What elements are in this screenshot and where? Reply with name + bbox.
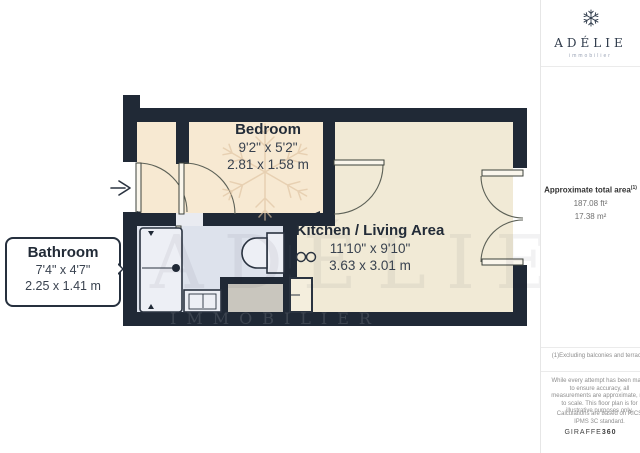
floorplan-page: ADÉLIE IMMOBILIER Bedroom 9'2" x 5'2" 2.… [0,0,640,453]
divider [541,347,640,348]
bathroom-name: Bathroom [7,243,119,262]
provider-suffix: 360 [602,429,617,436]
kitchen-door-leaf [334,160,384,165]
french-door-leaf [482,170,523,176]
french-door-opening [513,168,528,265]
bedroom-metric-dims: 2.81 x 1.58 m [198,156,338,173]
provider-name: GIRAFFE [564,429,601,436]
toilet-cistern [267,233,284,273]
bedroom-imperial-dims: 9'2" x 5'2" [198,139,338,156]
bathroom-door-opening [176,213,203,226]
area-footnote: (1)Excluding balconies and terraces [541,353,640,361]
kitchen-metric-dims: 3.63 x 3.01 m [289,257,451,274]
french-door-leaf [482,259,523,265]
room-label-bedroom: Bedroom 9'2" x 5'2" 2.81 x 1.58 m [198,120,338,173]
kitchen-imperial-dims: 11'10" x 9'10" [289,240,451,257]
floorplan-drawing [0,0,540,453]
entry-door-leaf [136,163,141,212]
bathroom-imperial-dims: 7'4" x 4'7" [7,262,119,278]
info-sidebar: ADÉLIE immobilier Approximate total area… [540,0,640,453]
area-summary: Approximate total area(1) 187.08 ft² 17.… [541,182,640,223]
snowflake-icon [582,8,600,28]
bathroom-callout: Bathroom 7'4" x 4'7" 2.25 x 1.41 m [5,237,121,307]
provider-credit: GIRAFFE360 [541,429,640,436]
toilet [242,238,267,268]
brand-name: ADÉLIE [541,36,640,50]
bedroom-name: Bedroom [198,120,338,139]
interior-wall [228,277,283,284]
kitchen-name: Kitchen / Living Area [289,221,451,240]
disclaimer-text: While every attempt has been made to ens… [541,378,640,416]
room-label-kitchen: Kitchen / Living Area 11'10" x 9'10" 3.6… [289,221,451,274]
bedroom-door-leaf [179,163,184,214]
bathroom-metric-dims: 2.25 x 1.41 m [7,278,119,294]
divider [541,371,640,372]
standard-note: Calculations are based on RICS IPMS 3C s… [541,411,640,426]
floor-utility [228,284,283,312]
area-metric: 17.38 m² [541,210,640,223]
area-imperial: 187.08 ft² [541,197,640,210]
divider [541,66,640,67]
interior-wall [176,122,189,164]
brand-tagline: immobilier [541,53,640,59]
area-label: Approximate total area(1) [541,182,640,197]
area-footnote-marker: (1) [631,185,637,191]
floorplan-canvas: ADÉLIE IMMOBILIER Bedroom 9'2" x 5'2" 2.… [0,0,540,453]
shower-head-dot [172,264,180,272]
brand-logo: ADÉLIE immobilier [541,8,640,59]
